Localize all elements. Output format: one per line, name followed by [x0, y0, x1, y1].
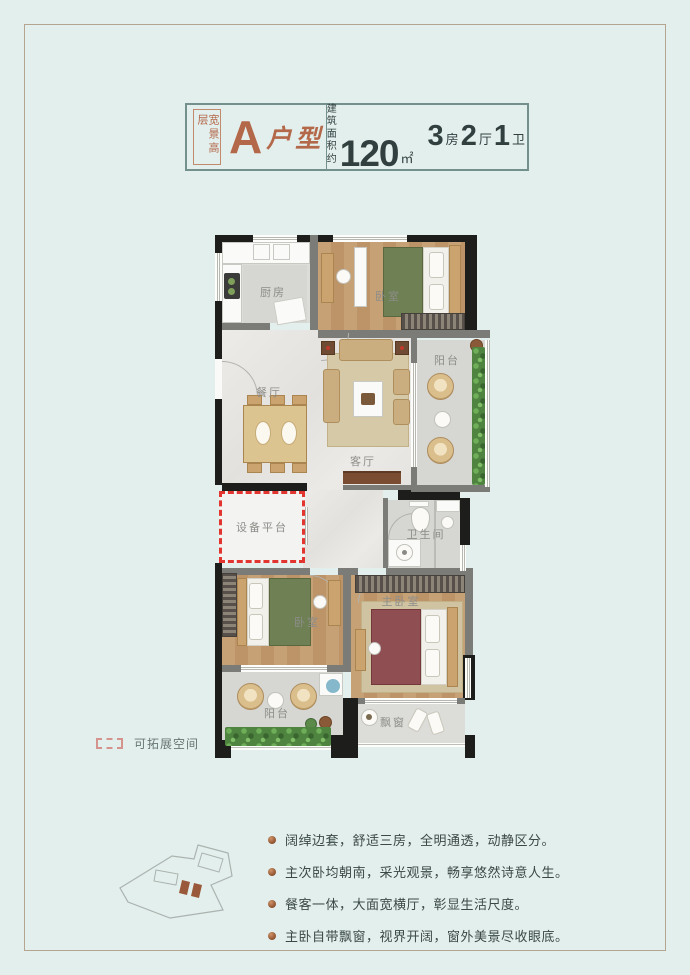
coffee-table-tray [361, 393, 375, 405]
desk [355, 629, 366, 671]
end-table-decor [326, 346, 330, 350]
feature-text: 主卧自带飘窗，视界开阔，窗外美景尽收眼底。 [285, 926, 569, 945]
window-slider [241, 665, 327, 672]
wall [222, 483, 307, 491]
room-label-bathroom: 卫生间 [407, 526, 446, 542]
balcony-chair [427, 373, 454, 400]
desk [328, 580, 341, 626]
wall [215, 563, 222, 675]
wall [343, 698, 358, 758]
dining-chair [292, 463, 307, 473]
window-rail [485, 340, 490, 487]
feature-item: 主次卧均朝南，采光观景，畅享悠然诗意人生。 [268, 862, 578, 881]
bed-duvet [269, 578, 311, 646]
area-prefix-line1: 建筑 [327, 104, 337, 129]
area-prefix: 建筑 面积约 [327, 104, 337, 171]
wardrobe [222, 573, 237, 637]
rooms-count: 3 [428, 123, 444, 151]
wall [215, 675, 222, 745]
wall [465, 568, 473, 655]
room-count-group: 3 房 2 厅 1 卫 [428, 123, 527, 151]
rooms-unit: 房 [446, 129, 459, 151]
dresser [354, 247, 367, 307]
bed-headboard [237, 578, 247, 646]
wall [465, 235, 477, 335]
room-label-balcony-bottom: 阳台 [264, 705, 290, 721]
feature-item: 主卧自带飘窗，视界开阔，窗外美景尽收眼底。 [268, 926, 578, 945]
unit-header: 宽景高层 A 户型 建筑 面积约 120 ㎡ 3 房 2 厅 1 卫 [185, 103, 529, 171]
room-label-equipment: 设备平台 [236, 519, 288, 535]
halls-unit: 厅 [479, 129, 492, 151]
site-key-plan-svg [110, 828, 242, 936]
end-table-decor [400, 346, 404, 350]
room-label-living: 客厅 [350, 453, 376, 469]
bed-duvet [383, 247, 423, 317]
site-outline [120, 845, 232, 918]
series-vertical-label: 宽景高层 [193, 109, 221, 165]
bay-window-railing [358, 743, 465, 747]
bed-headboard [449, 245, 461, 319]
wall [343, 568, 351, 672]
tv-console [343, 471, 401, 484]
dining-chair [270, 463, 285, 473]
balcony-railing [231, 746, 331, 750]
bed-headboard [447, 607, 458, 687]
bullet-icon [268, 932, 276, 940]
window [465, 658, 471, 698]
building-outline [154, 870, 178, 885]
room-label-bedroom-top: 卧室 [375, 288, 401, 304]
room-label-dining: 餐厅 [256, 384, 282, 400]
desk [321, 253, 334, 303]
desk-chair [368, 642, 381, 655]
desk-chair [313, 595, 327, 609]
unit-type-label: 户型 [266, 119, 324, 155]
building-outline [198, 853, 223, 872]
plate [281, 421, 297, 445]
unit-title-group: 宽景高层 A 户型 [187, 105, 326, 169]
area-value: 120 [340, 137, 399, 170]
room-label-kitchen: 厨房 [260, 284, 286, 300]
wall [310, 235, 318, 330]
pillow [429, 284, 444, 310]
balcony-plants [472, 347, 485, 485]
highlighted-unit [179, 880, 190, 895]
sofa-side [323, 369, 340, 423]
balcony-chair [427, 437, 454, 464]
floor-plan: 厨房 卧室 阳台 餐厅 客厅 设备平台 卫生间 卧室 主卧室 阳台 飘窗 [215, 235, 492, 758]
dining-table [243, 405, 307, 463]
area-unit: ㎡ [401, 148, 414, 170]
kitchen-sink [253, 244, 270, 260]
armchair [393, 369, 410, 395]
balcony-chair [290, 683, 317, 710]
window [365, 698, 457, 704]
stove-burner [228, 278, 235, 285]
room-label-bedroom-second: 卧室 [294, 614, 320, 630]
wall [222, 323, 270, 330]
kitchen-appliance [273, 297, 307, 326]
room-label-bay-window: 飘窗 [380, 714, 406, 730]
site-key-plan [110, 828, 242, 941]
window [460, 545, 466, 571]
feature-item: 阔绰边套，舒适三房，全明通透，动静区分。 [268, 830, 578, 849]
wardrobe [401, 313, 465, 330]
plate [255, 421, 271, 445]
pillow [429, 252, 444, 278]
wall [215, 299, 222, 359]
bullet-icon [268, 868, 276, 876]
baths-count: 1 [494, 123, 510, 151]
halls-count: 2 [461, 123, 477, 151]
stove-burner [228, 288, 235, 295]
room-label-balcony-right: 阳台 [434, 352, 460, 368]
bullet-icon [268, 836, 276, 844]
sink-drain [402, 550, 407, 555]
wall [215, 235, 222, 255]
feature-text: 阔绰边套，舒适三房，全明通透，动静区分。 [285, 830, 555, 849]
floorplan-page: { "header": { "series_vertical": "宽景高层",… [0, 0, 690, 975]
wall [417, 485, 490, 492]
unit-specs-group: 建筑 面积约 120 ㎡ 3 房 2 厅 1 卫 [327, 104, 527, 171]
bullet-icon [268, 900, 276, 908]
window [333, 235, 407, 242]
stove [224, 273, 240, 299]
wall [343, 485, 411, 490]
baths-unit: 卫 [512, 129, 525, 151]
bathroom-shelf [436, 500, 460, 512]
window [215, 253, 222, 301]
feature-list: 阔绰边套，舒适三房，全明通透，动静区分。 主次卧均朝南，采光观景，畅享悠然诗意人… [268, 830, 578, 958]
balcony-chair [237, 683, 264, 710]
window [253, 235, 297, 242]
area-prefix-line2: 面积约 [327, 129, 337, 167]
wardrobe [355, 575, 465, 593]
sofa-main [339, 339, 393, 361]
unit-letter: A [229, 114, 262, 160]
wall [465, 735, 475, 758]
dining-chair [292, 395, 307, 405]
balcony-plants [225, 727, 331, 746]
wall [460, 498, 470, 545]
expandable-space-label: 可拓展空间 [134, 735, 199, 752]
area-group: 建筑 面积约 120 ㎡ [327, 104, 414, 171]
room-label-master: 主卧室 [382, 593, 421, 609]
balcony-sink [324, 677, 342, 695]
entry-opening [215, 359, 222, 399]
pillow [425, 649, 440, 677]
wall [215, 399, 222, 485]
hallway-floor [303, 490, 383, 568]
wall [386, 568, 465, 575]
balcony-table [434, 411, 451, 428]
armchair [393, 399, 410, 425]
pillow [249, 614, 263, 640]
feature-text: 餐客一体，大面宽横厅，彰显生活尺度。 [285, 894, 528, 913]
bay-cup [366, 714, 372, 720]
highlighted-unit [191, 883, 202, 898]
feature-item: 餐客一体，大面宽横厅，彰显生活尺度。 [268, 894, 578, 913]
desk-chair [336, 269, 351, 284]
pillow [425, 615, 440, 643]
feature-text: 主次卧均朝南，采光观景，畅享悠然诗意人生。 [285, 862, 569, 881]
window-slider [411, 363, 417, 467]
pillow [249, 583, 263, 609]
expandable-space-swatch [96, 738, 123, 749]
dining-chair [247, 463, 262, 473]
kitchen-sink [273, 244, 290, 260]
